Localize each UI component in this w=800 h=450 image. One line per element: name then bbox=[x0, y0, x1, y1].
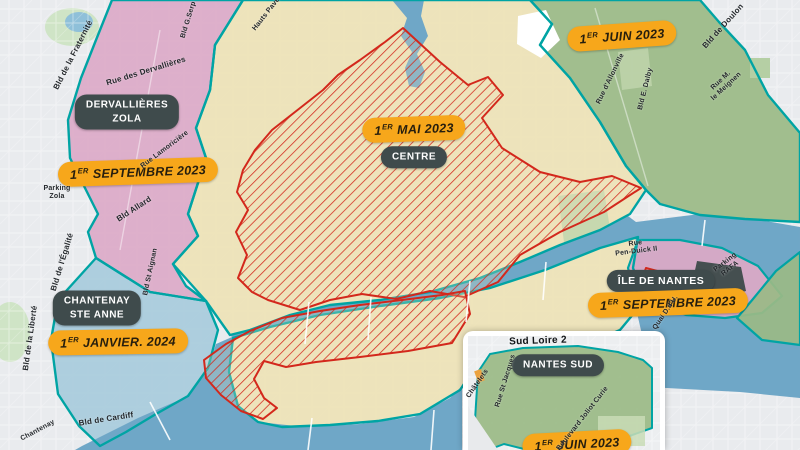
zone-name-line: STE ANNE bbox=[64, 308, 130, 322]
date-ordinal: ER bbox=[542, 438, 553, 448]
date-ordinal: ER bbox=[68, 335, 79, 344]
date-number: 1 bbox=[579, 32, 587, 46]
date-pill-chantenay: 1ERJANVIER. 2024 bbox=[48, 328, 188, 356]
zone-label-nantes-sud: NANTES SUD bbox=[512, 354, 604, 376]
zone-label-dervallieres-zola: DERVALLIÈRES ZOLA bbox=[75, 95, 179, 130]
zone-label-centre: CENTRE bbox=[381, 146, 447, 168]
inset-title-sud-loire: Sud Loire 2 bbox=[509, 334, 567, 347]
date-number: 1 bbox=[600, 299, 608, 313]
zone-name-line: CHANTENAY bbox=[64, 295, 130, 309]
date-ordinal: ER bbox=[382, 122, 393, 131]
zone-name-line: DERVALLIÈRES bbox=[86, 99, 168, 113]
zone-name-line: ÎLE DE NANTES bbox=[618, 274, 704, 288]
date-text: JANVIER. 2024 bbox=[83, 335, 176, 351]
nantes-zones-map: DERVALLIÈRES ZOLA CENTRE CHANTENAY STE A… bbox=[0, 0, 800, 450]
date-text: MAI 2023 bbox=[397, 121, 454, 137]
street-label-parking-zola: ParkingZola bbox=[43, 185, 70, 201]
date-number: 1 bbox=[70, 168, 78, 182]
date-ordinal: ER bbox=[607, 297, 618, 306]
date-pill-centre: 1ERMAI 2023 bbox=[362, 115, 466, 144]
zone-label-chantenay-ste-anne: CHANTENAY STE ANNE bbox=[53, 291, 141, 326]
date-ordinal: ER bbox=[77, 166, 88, 175]
date-number: 1 bbox=[534, 439, 542, 450]
map-canvas bbox=[0, 0, 800, 450]
date-number: 1 bbox=[60, 336, 68, 350]
date-text: JUIN 2023 bbox=[602, 27, 665, 45]
zone-name-line: ZOLA bbox=[86, 112, 168, 126]
zone-name-line: NANTES SUD bbox=[523, 358, 593, 372]
date-number: 1 bbox=[374, 124, 382, 138]
zone-name-line: CENTRE bbox=[392, 150, 436, 164]
date-ordinal: ER bbox=[587, 30, 599, 40]
